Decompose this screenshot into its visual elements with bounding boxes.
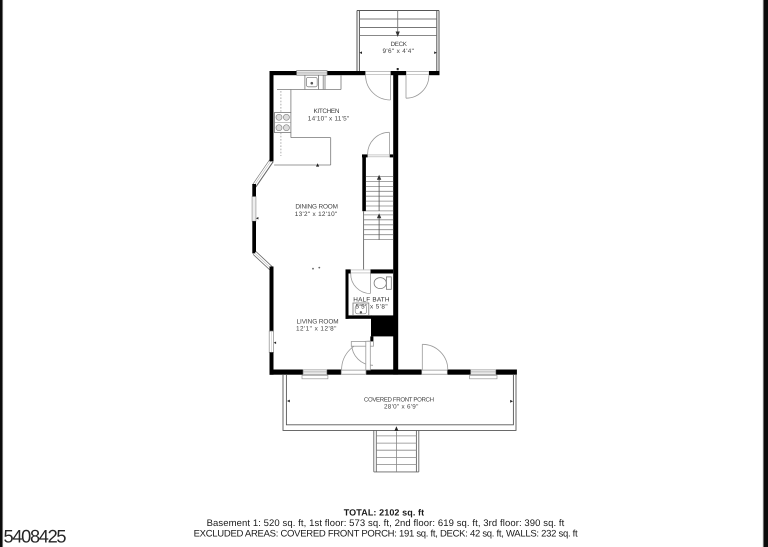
svg-text:28'0" x 6'9": 28'0" x 6'9": [384, 403, 419, 410]
svg-text:5408425: 5408425: [4, 527, 67, 547]
svg-text:TOTAL: 2102 sq. ft: TOTAL: 2102 sq. ft: [344, 508, 424, 518]
svg-text:12'1" x 12'8": 12'1" x 12'8": [296, 326, 337, 333]
svg-text:13'2" x 12'10": 13'2" x 12'10": [295, 211, 338, 218]
svg-text:5'5" x 5'8": 5'5" x 5'8": [356, 303, 388, 310]
svg-text:EXCLUDED AREAS: COVERED FRONT: EXCLUDED AREAS: COVERED FRONT PORCH: 191…: [194, 528, 578, 539]
svg-text:DECK: DECK: [391, 41, 408, 48]
svg-text:Basement 1: 520 sq. ft, 1st fl: Basement 1: 520 sq. ft, 1st floor: 573 s…: [207, 518, 565, 529]
svg-text:DINING ROOM: DINING ROOM: [295, 204, 337, 211]
svg-text:14'10" x 11'5": 14'10" x 11'5": [308, 115, 350, 122]
svg-text:HALF BATH: HALF BATH: [353, 296, 390, 303]
svg-text:KITCHEN: KITCHEN: [313, 108, 339, 115]
svg-text:9'6" x 4'4": 9'6" x 4'4": [383, 48, 415, 55]
